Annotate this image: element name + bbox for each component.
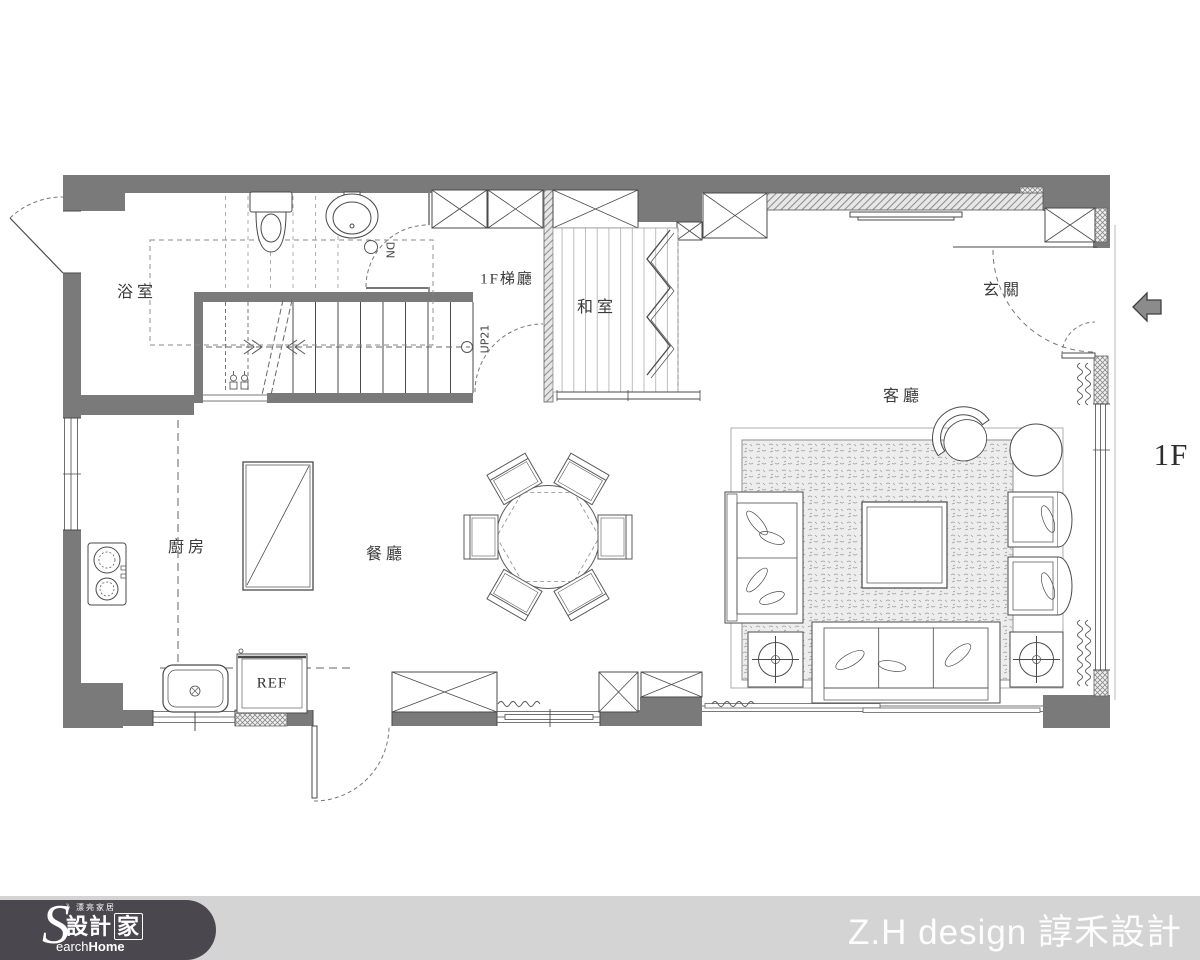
room-label-entry: 玄關 — [983, 276, 1023, 300]
room-label-dining: 餐廳 — [366, 540, 406, 564]
dining-chair — [554, 569, 609, 620]
armchair — [1008, 557, 1072, 615]
sink-icon — [326, 192, 378, 238]
kitchen-fixtures — [88, 420, 353, 731]
designer-watermark: Z.H design 諄禾設計 — [840, 904, 1190, 955]
room-label-living: 客廳 — [883, 382, 923, 406]
logo-tagline: 》漂亮家居 — [66, 903, 143, 913]
bathroom-fixtures — [150, 192, 433, 389]
faucet-valves-icon — [230, 371, 248, 389]
tv-cabinet — [767, 193, 1043, 210]
dining-chair — [598, 515, 632, 559]
armchair — [1008, 492, 1072, 547]
logo-latin-earch: earch — [56, 939, 89, 954]
entry-arrow-icon — [1133, 293, 1161, 321]
dining-chair — [487, 569, 542, 620]
tv-icon — [850, 212, 962, 220]
sofa — [812, 622, 1000, 703]
stove-icon — [88, 543, 126, 605]
room-label-kitchen: 廚房 — [168, 533, 208, 557]
round-side-table — [1010, 424, 1062, 476]
living-furniture — [725, 395, 1072, 703]
floor-plan-svg — [0, 0, 1200, 905]
loveseat — [725, 492, 803, 623]
room-label-stair-hall: 1F梯廳 — [480, 268, 534, 289]
logo-latin-home: Home — [89, 939, 125, 954]
lamp-table — [1010, 632, 1063, 687]
dining-set — [464, 453, 632, 621]
floor-drain-icon — [365, 241, 378, 254]
logo-brand-cjk: 設計 — [66, 914, 112, 939]
logo-home-glyph: 家 — [114, 913, 143, 940]
stairs-down-label: DN — [384, 242, 397, 259]
searchhome-logo: S 》漂亮家居 設計 家 earchHome — [42, 901, 143, 959]
dining-chair — [464, 515, 498, 559]
dining-chair — [487, 453, 542, 504]
dining-chair — [554, 453, 609, 504]
island-counter — [243, 462, 313, 590]
toilet-icon — [250, 192, 292, 252]
coffee-table — [862, 502, 947, 588]
room-label-tatami: 和室 — [577, 293, 617, 317]
stairs-up-label: UP21 — [479, 325, 492, 354]
room-label-bathroom: 浴室 — [117, 278, 157, 302]
floor-label: 1F — [1154, 437, 1189, 473]
floorplan-page: 浴室 1F梯廳 和室 玄關 客廳 廚房 餐廳 REF DN UP21 1F S … — [0, 0, 1200, 960]
lamp-table — [748, 632, 803, 687]
stairs — [203, 300, 473, 401]
refrigerator-label: REF — [257, 676, 288, 693]
tatami-room — [553, 228, 700, 401]
